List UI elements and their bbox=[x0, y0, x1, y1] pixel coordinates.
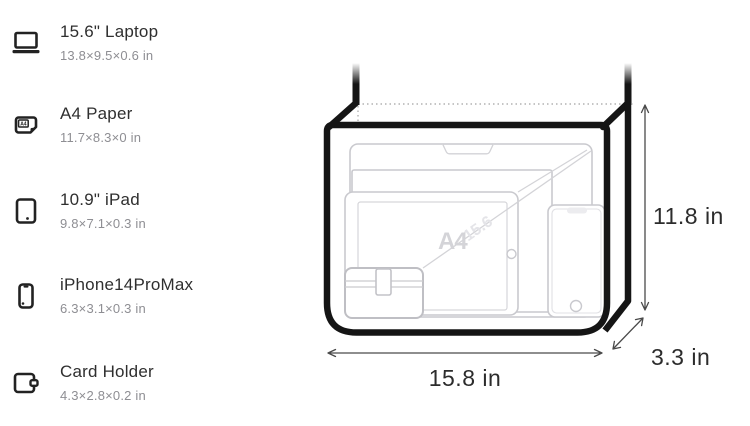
width-arrow bbox=[328, 350, 602, 357]
item-name: 10.9" iPad bbox=[60, 190, 146, 210]
bag-right-strap bbox=[625, 63, 632, 105]
list-item-card-holder: Card Holder 4.3×2.8×0.2 in bbox=[10, 362, 154, 404]
a4-icon-label: A4 bbox=[20, 121, 27, 127]
a4-paper-icon: A4 bbox=[10, 109, 42, 141]
item-name: iPhone14ProMax bbox=[60, 275, 193, 295]
item-dimensions: 13.8×9.5×0.6 in bbox=[60, 48, 158, 64]
item-dimensions: 9.8×7.1×0.3 in bbox=[60, 216, 146, 232]
bag-contents: 15.6 A4 bbox=[345, 144, 605, 318]
ipad-icon bbox=[10, 195, 42, 227]
bag-top-right-edge bbox=[603, 103, 628, 127]
list-item-iphone: iPhone14ProMax 6.3×3.1×0.3 in bbox=[10, 275, 193, 317]
height-arrow bbox=[642, 105, 649, 310]
inner-iphone-speaker bbox=[567, 208, 587, 214]
bag-diagram: 15.6 A4 11.8 in 15.8 in bbox=[315, 55, 750, 426]
depth-dimension-label: 3.3 in bbox=[651, 344, 710, 370]
height-dimension-label: 11.8 in bbox=[653, 203, 724, 229]
list-item-laptop: 15.6" Laptop 13.8×9.5×0.6 in bbox=[10, 22, 158, 64]
list-item-ipad: 10.9" iPad 9.8×7.1×0.3 in bbox=[10, 190, 146, 232]
item-name: A4 Paper bbox=[60, 104, 141, 124]
item-dimensions: 4.3×2.8×0.2 in bbox=[60, 388, 154, 404]
list-item-a4-paper: A4 A4 Paper 11.7×8.3×0 in bbox=[10, 104, 141, 146]
bag-size-infographic: 15.6" Laptop 13.8×9.5×0.6 in A4 A4 Paper… bbox=[0, 0, 750, 426]
a4-watermark: A4 bbox=[438, 228, 468, 255]
item-name: 15.6" Laptop bbox=[60, 22, 158, 42]
item-list: 15.6" Laptop 13.8×9.5×0.6 in A4 A4 Paper… bbox=[0, 0, 300, 426]
width-dimension-label: 15.8 in bbox=[429, 365, 502, 391]
depth-arrow bbox=[613, 318, 643, 349]
inner-card-holder-clasp bbox=[376, 269, 391, 295]
item-dimensions: 6.3×3.1×0.3 in bbox=[60, 301, 193, 317]
item-dimensions: 11.7×8.3×0 in bbox=[60, 130, 141, 146]
item-name: Card Holder bbox=[60, 362, 154, 382]
card-holder-icon bbox=[10, 367, 42, 399]
bag-left-strap bbox=[353, 63, 360, 105]
laptop-icon bbox=[10, 27, 42, 59]
iphone-icon bbox=[10, 280, 42, 312]
